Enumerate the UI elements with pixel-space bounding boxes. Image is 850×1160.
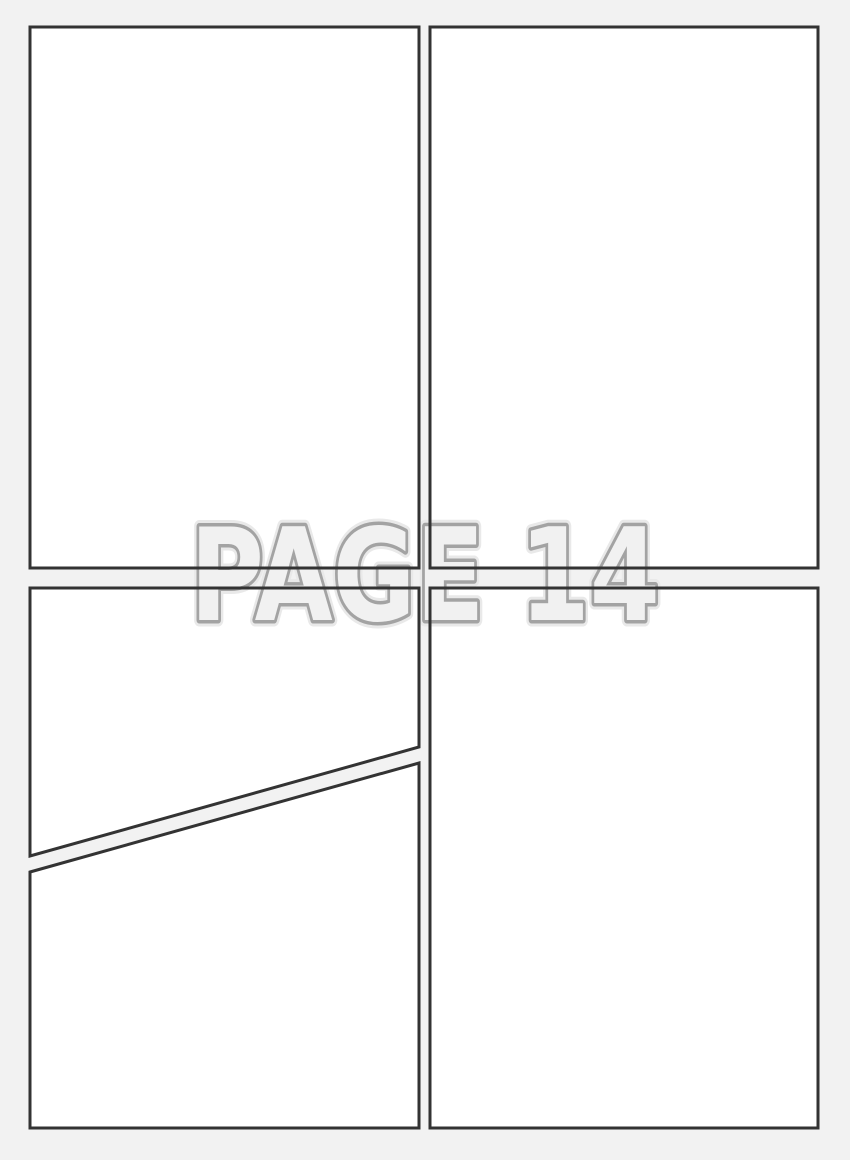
panel-bottom-right: [430, 588, 818, 1128]
page-number-text: PAGE 14: [190, 502, 660, 651]
comic-template-page: PAGE 14 PAGE 14: [0, 0, 850, 1160]
page-number-watermark: PAGE 14 PAGE 14: [190, 502, 660, 651]
panel-top-right: [430, 27, 818, 568]
panel-top-left: [30, 27, 419, 568]
comic-page-canvas: PAGE 14 PAGE 14: [0, 0, 850, 1160]
